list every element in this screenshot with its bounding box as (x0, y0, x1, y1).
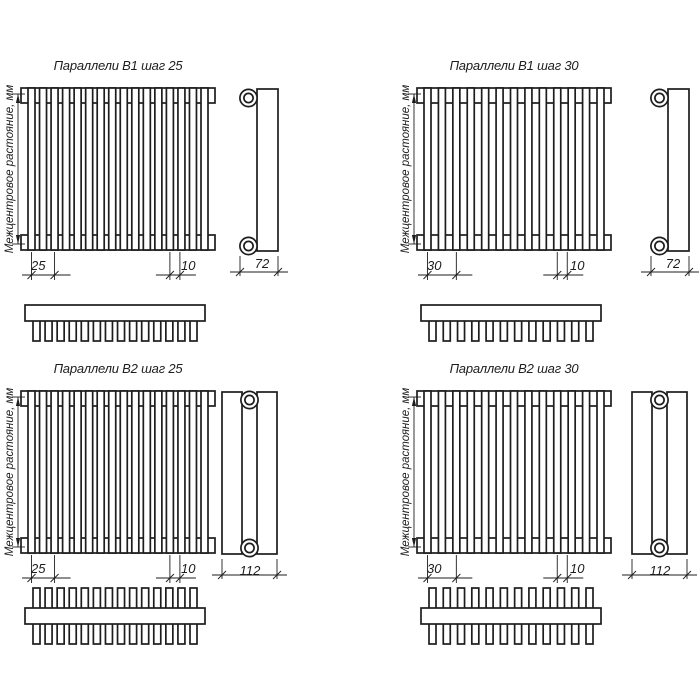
top-view (25, 588, 205, 644)
panel-title: Параллели В1 шаг 25 (28, 58, 208, 73)
top-view (25, 305, 205, 341)
step-dimension-label: 30 (427, 561, 441, 576)
drawing-linework-b1-step25 (0, 55, 350, 400)
object-lines (21, 391, 277, 644)
front-view (21, 88, 215, 250)
panel-parallels-b1-step25: Параллели В1 шаг 25 Межцентровое растоян… (0, 55, 350, 400)
object-lines (417, 391, 687, 644)
panel-parallels-b2-step25: Параллели В2 шаг 25 Межцентровое растоян… (0, 358, 350, 700)
drawing-linework-b1-step30 (396, 55, 700, 400)
center-distance-axis-label: Межцентровое растояние, мм (400, 85, 412, 254)
drawing-linework-b2-step25 (0, 358, 350, 700)
object-lines (21, 88, 278, 341)
side-view (240, 89, 278, 255)
tube-width-dimension-label: 10 (570, 561, 584, 576)
depth-dimension-label: 112 (638, 563, 682, 578)
tube-width-dimension-label: 10 (181, 258, 195, 273)
tube-width-dimension-label: 10 (570, 258, 584, 273)
drawing-linework-b2-step30 (396, 358, 700, 700)
step-dimension-label: 30 (427, 258, 441, 273)
front-view (417, 391, 611, 553)
step-dimension-label: 25 (31, 258, 45, 273)
tube-width-dimension-label: 10 (181, 561, 195, 576)
panel-title: Параллели В2 шаг 25 (28, 361, 208, 376)
center-distance-axis-label: Межцентровое растояние, мм (4, 85, 16, 254)
side-view (651, 89, 689, 255)
depth-dimension-label: 72 (658, 256, 688, 271)
radiator-drawing-sheet: Параллели В1 шаг 25 Межцентровое растоян… (0, 0, 700, 700)
panel-parallels-b1-step30: Параллели В1 шаг 30 Межцентровое растоян… (396, 55, 700, 400)
top-view (421, 588, 601, 644)
center-distance-axis-label: Межцентровое растояние, мм (400, 388, 412, 557)
top-view (421, 305, 601, 341)
front-view (417, 88, 611, 250)
panel-parallels-b2-step30: Параллели В2 шаг 30 Межцентровое растоян… (396, 358, 700, 700)
depth-dimension-label: 72 (247, 256, 277, 271)
panel-title: Параллели В2 шаг 30 (424, 361, 604, 376)
depth-dimension-label: 112 (228, 563, 272, 578)
step-dimension-label: 25 (31, 561, 45, 576)
side-view (632, 391, 687, 556)
panel-title: Параллели В1 шаг 30 (424, 58, 604, 73)
center-distance-axis-label: Межцентровое растояние, мм (4, 388, 16, 557)
front-view (21, 391, 215, 553)
object-lines (417, 88, 689, 341)
side-view (222, 391, 277, 556)
